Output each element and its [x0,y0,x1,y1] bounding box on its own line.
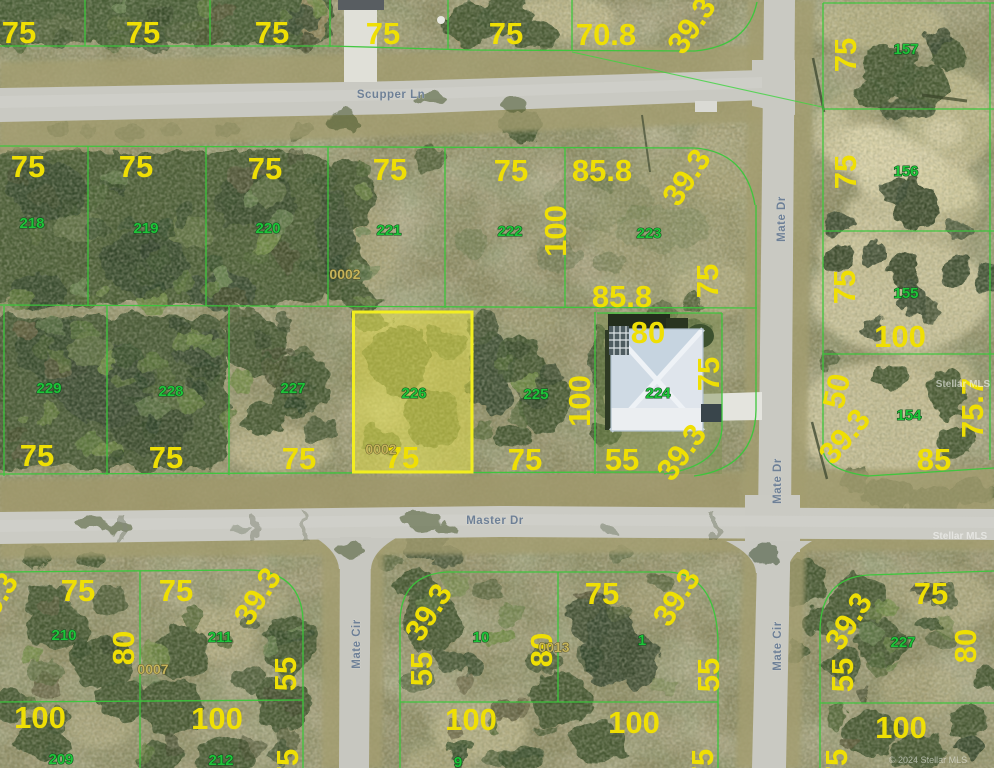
svg-text:220: 220 [255,220,280,237]
svg-text:75: 75 [159,573,193,608]
svg-text:85.8: 85.8 [572,153,632,188]
svg-text:155: 155 [893,285,918,302]
svg-text:75: 75 [685,749,720,768]
svg-text:210: 210 [51,627,76,644]
svg-text:Master Dr: Master Dr [466,515,524,527]
svg-text:75: 75 [282,441,316,476]
svg-text:55: 55 [691,658,726,692]
svg-text:1: 1 [638,632,646,649]
svg-text:75: 75 [119,149,153,184]
svg-text:Scupper Ln: Scupper Ln [357,89,425,101]
svg-text:75: 75 [828,155,863,189]
svg-text:100: 100 [191,701,243,736]
svg-text:Mate Dr: Mate Dr [772,458,784,504]
svg-text:75: 75 [11,149,45,184]
svg-text:75: 75 [585,576,619,611]
svg-text:219: 219 [133,220,158,237]
svg-text:Mate Cir: Mate Cir [351,619,363,668]
svg-text:0002: 0002 [365,441,396,457]
svg-text:0002: 0002 [329,266,360,282]
svg-text:226: 226 [401,385,426,402]
svg-text:Mate Dr: Mate Dr [776,196,788,242]
svg-text:75: 75 [827,270,862,304]
svg-text:218: 218 [19,215,44,232]
svg-text:0013: 0013 [538,639,569,655]
svg-text:225: 225 [523,386,548,403]
svg-text:227: 227 [890,634,915,651]
svg-text:55: 55 [404,652,439,686]
svg-text:75: 75 [508,442,542,477]
svg-text:55: 55 [605,442,639,477]
svg-text:157: 157 [893,41,918,58]
svg-text:224: 224 [645,385,671,402]
svg-text:221: 221 [376,222,401,239]
svg-text:80: 80 [106,631,141,665]
svg-text:154: 154 [896,407,922,424]
svg-text:80: 80 [948,629,983,663]
svg-text:100: 100 [538,205,573,257]
svg-text:55: 55 [268,657,303,691]
svg-text:75: 75 [248,151,282,186]
svg-text:55: 55 [825,658,860,692]
svg-text:229: 229 [36,380,61,397]
svg-text:100: 100 [445,702,497,737]
svg-text:100: 100 [874,319,926,354]
svg-text:9: 9 [454,754,462,768]
svg-text:0007: 0007 [137,661,168,677]
svg-text:75: 75 [819,749,854,768]
svg-text:75: 75 [255,15,289,50]
svg-text:75: 75 [373,152,407,187]
svg-text:Mate Cir: Mate Cir [772,621,784,670]
svg-text:100: 100 [14,700,66,735]
svg-text:75: 75 [366,16,400,51]
svg-text:75: 75 [61,573,95,608]
svg-text:75: 75 [270,749,305,768]
svg-text:10: 10 [473,629,490,646]
svg-text:75: 75 [2,15,36,50]
svg-text:85.8: 85.8 [592,279,652,314]
svg-text:Stellar MLS: Stellar MLS [933,531,988,542]
svg-text:227: 227 [280,380,305,397]
svg-text:223: 223 [636,225,661,242]
svg-text:156: 156 [893,163,918,180]
svg-text:75: 75 [690,264,725,298]
svg-text:100: 100 [608,705,660,740]
svg-text:211: 211 [208,629,232,646]
svg-text:© 2024 Stellar MLS: © 2024 Stellar MLS [889,755,967,765]
svg-text:75: 75 [149,440,183,475]
svg-text:212: 212 [208,752,233,768]
svg-text:222: 222 [497,223,522,240]
svg-text:75: 75 [691,357,726,391]
svg-text:75: 75 [20,438,54,473]
svg-text:100: 100 [875,710,927,745]
svg-text:75: 75 [494,153,528,188]
svg-text:70.8: 70.8 [576,17,636,52]
svg-text:75: 75 [914,576,948,611]
svg-text:75: 75 [126,15,160,50]
svg-text:228: 228 [158,383,183,400]
svg-text:80: 80 [631,315,665,350]
svg-text:Stellar MLS: Stellar MLS [936,379,991,390]
svg-text:209: 209 [48,751,73,768]
svg-text:100: 100 [562,375,597,427]
svg-text:75: 75 [828,38,863,72]
svg-text:85: 85 [917,442,951,477]
svg-text:75: 75 [489,16,523,51]
